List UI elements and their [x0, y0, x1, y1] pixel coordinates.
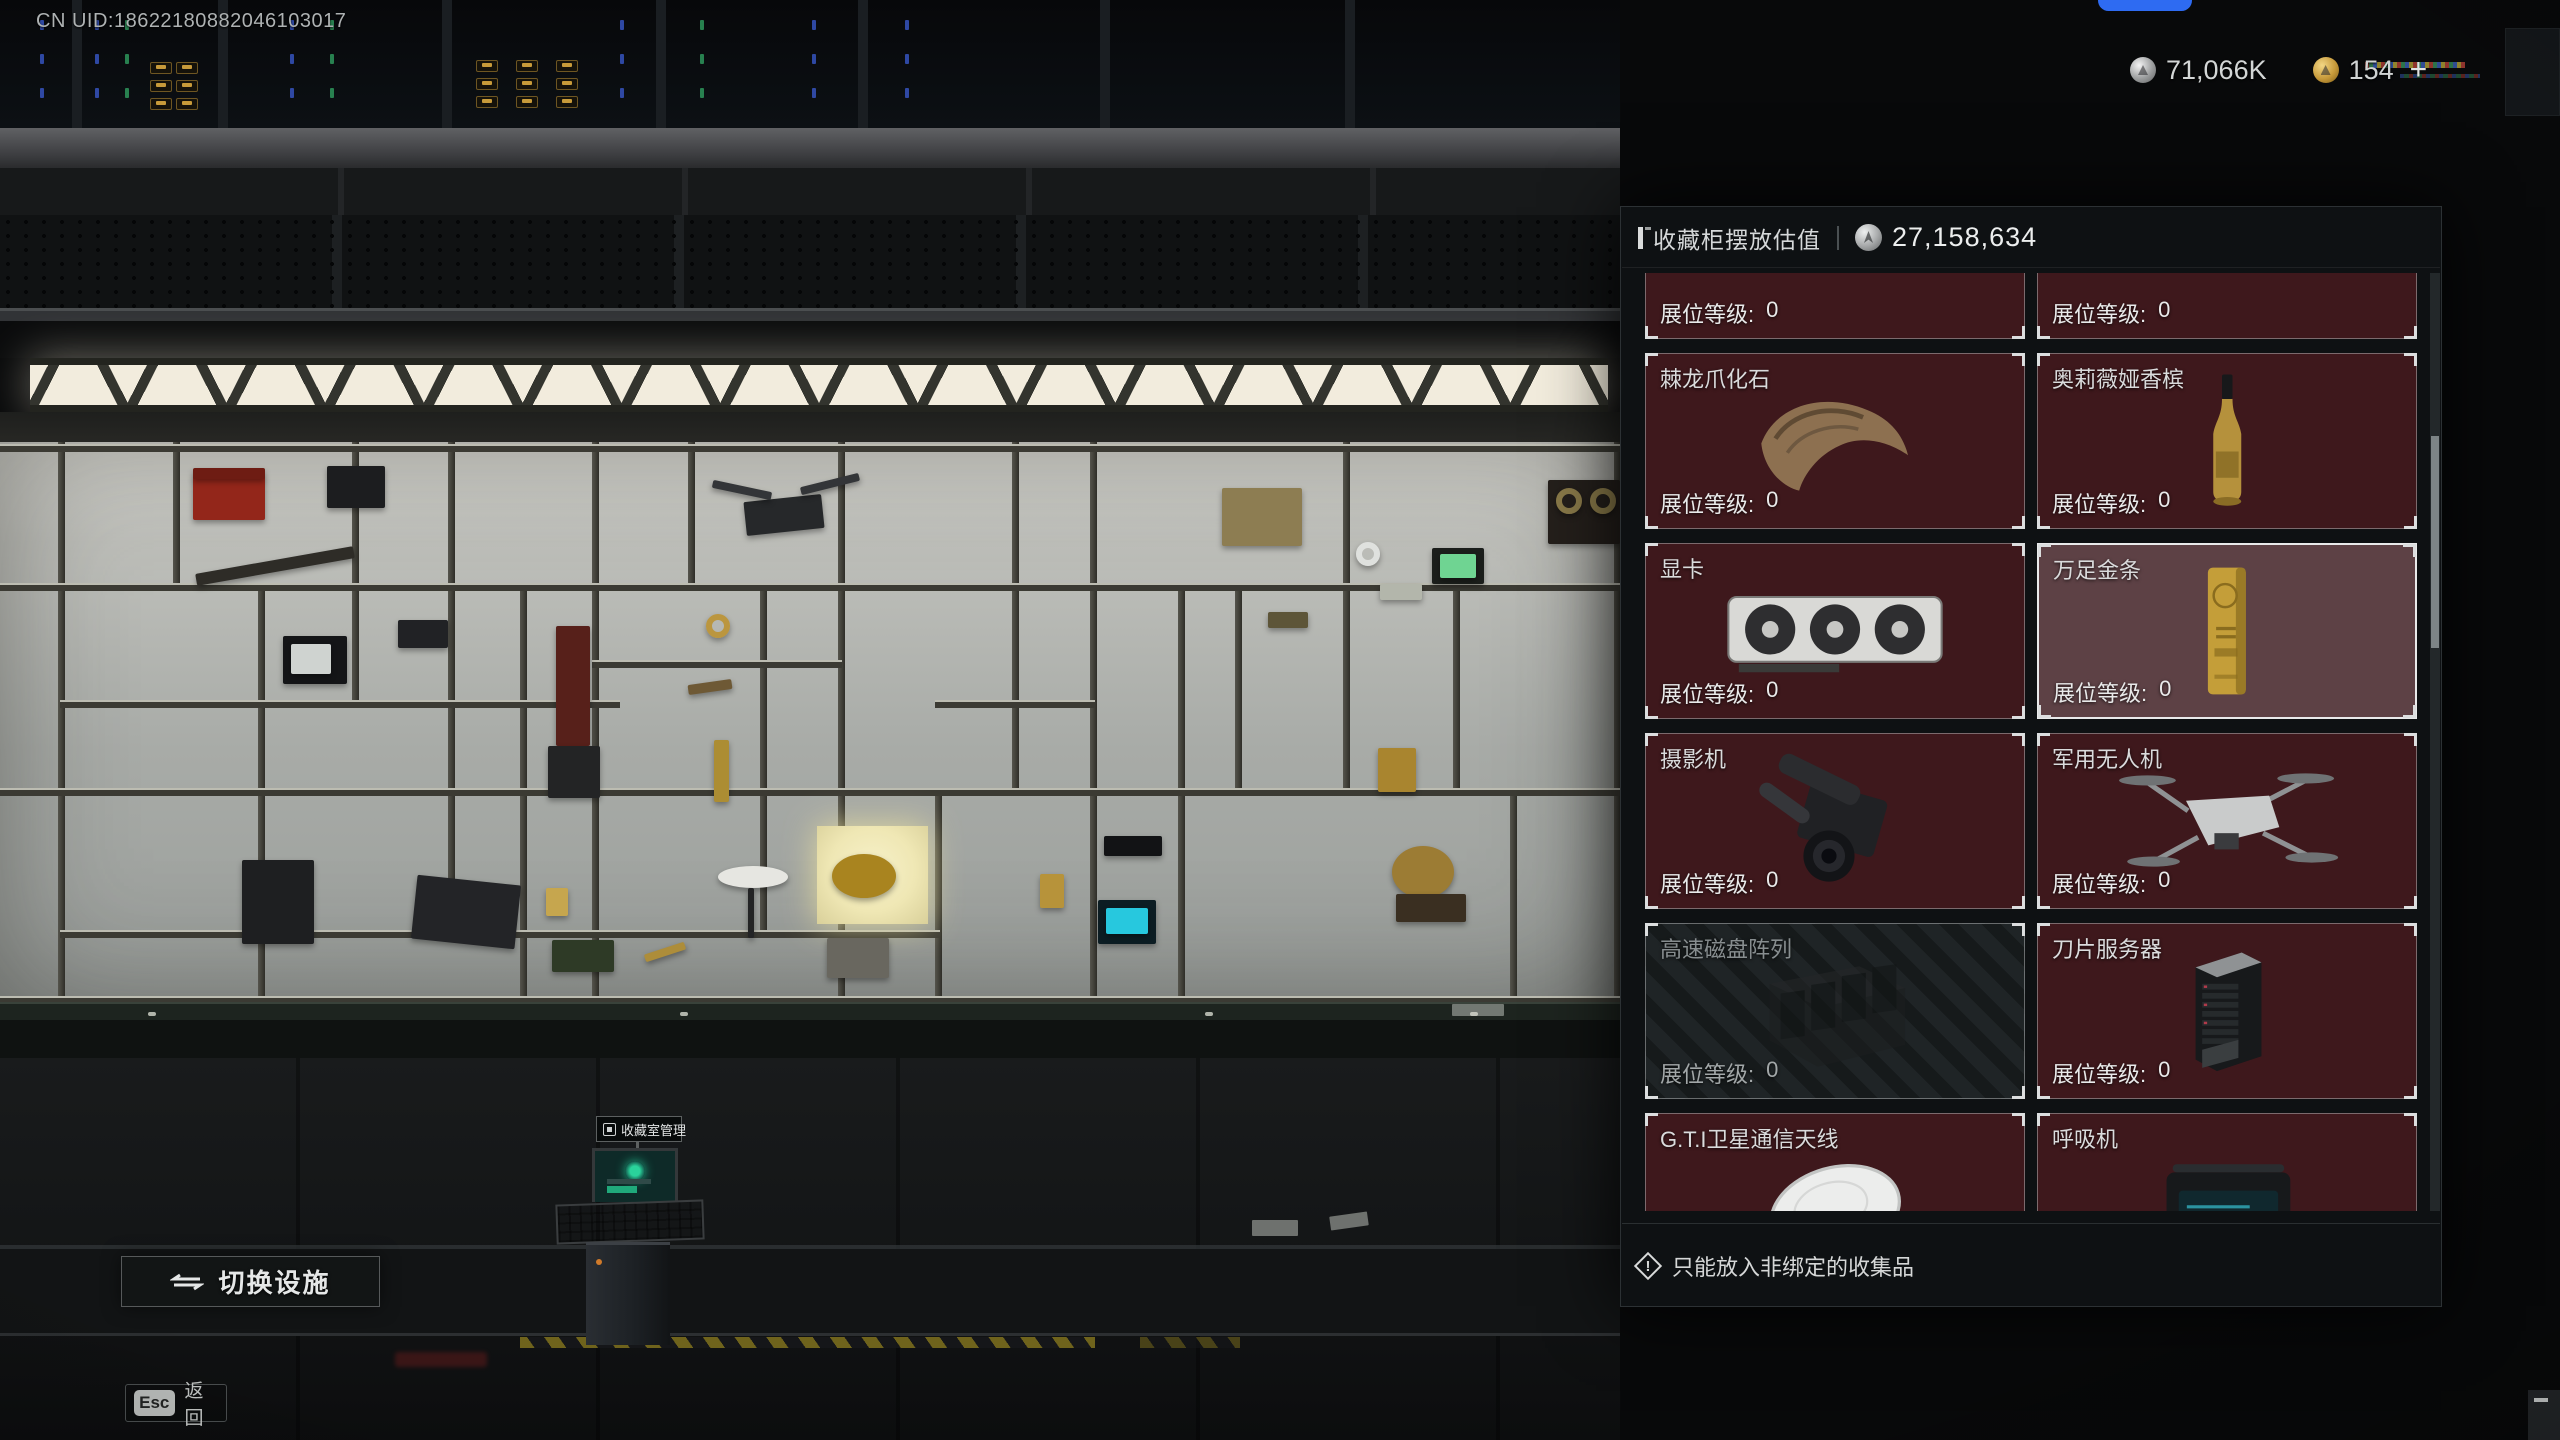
- item-name: 显卡: [1660, 552, 1704, 584]
- item-name: 摄影机: [1660, 742, 1726, 774]
- shelf-upright: [448, 442, 455, 930]
- amber-rack-module: [516, 96, 538, 108]
- counter-top: [0, 1002, 1620, 1020]
- briefcase: [411, 875, 521, 950]
- terminal-laptop-screen: [592, 1148, 678, 1202]
- shelf-upright: [1090, 442, 1097, 1000]
- collection-grid: 展位等级:0展位等级:0棘龙爪化石展位等级:0奥莉薇娅香槟展位等级:0显卡展位等…: [1645, 273, 2417, 1211]
- shelf-upright: [1012, 442, 1019, 788]
- booth-level: 展位等级:0: [1660, 297, 1778, 329]
- booth-level-label: 展位等级:: [1660, 1057, 1754, 1089]
- gold-ring: [706, 614, 730, 638]
- ceiling-sill: [0, 308, 1620, 321]
- card-corner-tick: [2038, 544, 2051, 557]
- collection-card-claw[interactable]: 棘龙爪化石展位等级:0: [1645, 353, 2025, 529]
- amber-rack-module: [176, 98, 198, 110]
- card-corner-tick: [2012, 733, 2025, 746]
- card-corner-tick: [1645, 543, 1658, 556]
- rack-led: [330, 88, 334, 98]
- rack-led: [905, 20, 909, 30]
- card-corner-tick: [2404, 733, 2417, 746]
- window-mullion: [442, 0, 452, 128]
- terminal-keyboard: [555, 1199, 704, 1244]
- shelf-board: [935, 700, 1095, 708]
- booth-level-value: 0: [1766, 677, 1778, 709]
- card-corner-tick: [2404, 326, 2417, 339]
- booth-level: 展位等级:0: [1660, 867, 1778, 899]
- rack-led: [812, 54, 816, 64]
- collection-valuation-panel: 收藏柜摆放估值 27,158,634 展位等级:0展位等级:0棘龙爪化石展位等级…: [1621, 207, 2441, 1306]
- cabinet-icon: [603, 1123, 616, 1136]
- booth-level-label: 展位等级:: [2052, 487, 2146, 519]
- vintage-radio: [242, 860, 314, 944]
- header-separator: [1837, 226, 1839, 250]
- item-name: 棘龙爪化石: [1660, 362, 1770, 394]
- card-corner-tick: [1645, 1086, 1658, 1099]
- shelf-board: [0, 788, 1620, 796]
- skylight-lower-band: [0, 412, 1620, 442]
- shelf-upright: [1343, 442, 1350, 788]
- ceiling-panel-row: [0, 168, 1620, 215]
- collection-card-white-part[interactable]: 展位等级:0: [2037, 273, 2417, 339]
- counter-light: [148, 1012, 156, 1016]
- ammo-box: [552, 940, 614, 972]
- plate-stand: [748, 888, 754, 938]
- shelf-upright: [688, 442, 695, 583]
- shelf-upright: [935, 788, 942, 1000]
- card-corner-tick: [2012, 353, 2025, 366]
- booth-level-value: 0: [2158, 1057, 2170, 1089]
- card-corner-tick: [1645, 896, 1658, 909]
- rack-led: [620, 54, 624, 64]
- collection-grid-viewport: 展位等级:0展位等级:0棘龙爪化石展位等级:0奥莉薇娅香槟展位等级:0显卡展位等…: [1622, 273, 2442, 1211]
- card-corner-tick: [2403, 705, 2416, 718]
- rack-led: [125, 54, 129, 64]
- amber-rack-module: [150, 62, 172, 74]
- booth-level-label: 展位等级:: [1660, 867, 1754, 899]
- amber-rack-module: [150, 80, 172, 92]
- rack-led: [905, 54, 909, 64]
- total-valuation: 27,158,634: [1892, 222, 2037, 253]
- booth-level: 展位等级:0: [2053, 676, 2171, 708]
- card-corner-tick: [1645, 706, 1658, 719]
- rack-led: [700, 88, 704, 98]
- booth-level-value: 0: [2159, 676, 2171, 708]
- amber-rack-module: [556, 78, 578, 90]
- amber-rack-module: [150, 98, 172, 110]
- shelf-upright: [173, 442, 180, 583]
- booth-level-label: 展位等级:: [2053, 676, 2147, 708]
- card-corner-tick: [2037, 1086, 2050, 1099]
- card-corner-tick: [1645, 733, 1658, 746]
- gold-idol: [1040, 874, 1064, 908]
- booth-level-value: 0: [1766, 297, 1778, 329]
- vacuum-body: [556, 626, 590, 746]
- paper-sheet: [1452, 1004, 1504, 1016]
- counter-light: [1205, 1012, 1213, 1016]
- counter-light: [1470, 1012, 1478, 1016]
- item-name: G.T.I卫星通信天线: [1660, 1122, 1838, 1154]
- silver-amount: 71,066K: [2166, 55, 2267, 86]
- hazard-stripe-small: [1140, 1337, 1240, 1348]
- step-edge: [0, 1333, 1620, 1336]
- rack-led: [700, 54, 704, 64]
- panel-title: 收藏柜摆放估值: [1653, 221, 1821, 255]
- scrollbar-thumb[interactable]: [2431, 436, 2439, 648]
- swap-arrows-icon: [170, 1271, 204, 1293]
- gramophone-horn: [1392, 846, 1454, 898]
- right-dark-region: [2441, 0, 2560, 1440]
- back-label: 返回: [185, 1376, 218, 1430]
- switch-facility-label: 切换设施: [218, 1263, 330, 1300]
- card-corner-tick: [2404, 353, 2417, 366]
- military-radio: [1222, 488, 1302, 546]
- booth-level-label: 展位等级:: [1660, 487, 1754, 519]
- amber-rack-module: [176, 62, 198, 74]
- rack-led: [905, 88, 909, 98]
- card-corner-tick: [2012, 326, 2025, 339]
- item-name: 奥莉薇娅香槟: [2052, 362, 2184, 394]
- shelf-board: [60, 700, 620, 708]
- card-corner-tick: [2404, 923, 2417, 936]
- laptop-progress-bar: [607, 1186, 637, 1193]
- money-stack: [1380, 584, 1422, 600]
- shelf-upright: [1453, 583, 1460, 788]
- amber-rack-module: [516, 78, 538, 90]
- item-name: 军用无人机: [2052, 742, 2162, 774]
- paper-sheet: [1252, 1220, 1298, 1236]
- rack-led: [125, 88, 129, 98]
- amber-rack-module: [556, 96, 578, 108]
- rack-led: [40, 88, 44, 98]
- rack-led: [620, 20, 624, 30]
- card-corner-tick: [2038, 705, 2051, 718]
- shelf-board: [0, 583, 1620, 591]
- booth-level: 展位等级:0: [1660, 487, 1778, 519]
- rack-led: [290, 88, 294, 98]
- booth-level: 展位等级:0: [1660, 677, 1778, 709]
- shelf-upright: [1510, 788, 1517, 1000]
- ceiling-vent-panels: [0, 215, 1620, 308]
- footer-note: 只能放入非绑定的收集品: [1672, 1250, 1914, 1282]
- amber-rack-module: [476, 78, 498, 90]
- shelf-upright: [58, 442, 65, 1000]
- gramophone-base: [1396, 894, 1466, 922]
- booth-level-label: 展位等级:: [2052, 867, 2146, 899]
- card-corner-tick: [2037, 733, 2050, 746]
- collection-card-champagne[interactable]: 奥莉薇娅香槟展位等级:0: [2037, 353, 2417, 529]
- ceiling-understructure: [0, 321, 1620, 358]
- player-uid: CN UID:18622180882046103017: [36, 10, 346, 33]
- power-led: [596, 1259, 602, 1265]
- right-machine: [2528, 1390, 2560, 1440]
- notification-pill: [2098, 0, 2192, 11]
- booth-level-value: 0: [1766, 487, 1778, 519]
- reel-left: [1556, 488, 1582, 514]
- tank-model: [1268, 612, 1308, 628]
- amber-rack-module: [556, 60, 578, 72]
- gold-artifact-bowl: [832, 854, 896, 898]
- dark-box: [327, 466, 385, 508]
- card-corner-tick: [2012, 1113, 2025, 1126]
- booth-level-label: 展位等级:: [1660, 677, 1754, 709]
- window-mullion: [1345, 0, 1355, 128]
- card-corner-tick: [2404, 1086, 2417, 1099]
- card-corner-tick: [1645, 516, 1658, 529]
- card-corner-tick: [2012, 706, 2025, 719]
- vacuum-base: [548, 746, 600, 798]
- card-corner-tick: [2037, 353, 2050, 366]
- item-name: 呼吸机: [2052, 1122, 2118, 1154]
- rack-led: [812, 88, 816, 98]
- booth-level-value: 0: [2158, 487, 2170, 519]
- shelf-upright: [1235, 583, 1242, 788]
- shelf-board: [592, 660, 842, 668]
- card-corner-tick: [2404, 1113, 2417, 1126]
- panel-footer: ! 只能放入非绑定的收集品: [1622, 1223, 2440, 1307]
- amber-rack-module: [476, 96, 498, 108]
- booth-level-label: 展位等级:: [2052, 1057, 2146, 1089]
- collection-card-camera[interactable]: 摄影机展位等级:0: [1645, 733, 2025, 909]
- gold-card: [546, 888, 568, 916]
- card-corner-tick: [2012, 516, 2025, 529]
- card-corner-tick: [2012, 543, 2025, 556]
- rack-led: [812, 20, 816, 30]
- card-corner-tick: [2012, 923, 2025, 936]
- red-graffiti: [395, 1352, 487, 1367]
- rack-led: [330, 54, 334, 64]
- item-name: 高速磁盘阵列: [1660, 932, 1792, 964]
- card-corner-tick: [1645, 1113, 1658, 1126]
- booth-level: 展位等级:0: [1660, 1057, 1778, 1089]
- skylight-truss-light: [30, 358, 1608, 412]
- card-corner-tick: [1645, 353, 1658, 366]
- shelf-upright: [592, 442, 599, 1000]
- gold-coin-icon: [2313, 57, 2339, 83]
- scrollbar[interactable]: [2430, 273, 2440, 1211]
- booth-level-label: 展位等级:: [1660, 297, 1754, 329]
- collection-card-circuit-board[interactable]: 展位等级:0: [1645, 273, 2025, 339]
- gold-amount: 154: [2349, 55, 2394, 86]
- card-corner-tick: [2037, 1113, 2050, 1126]
- reel-right: [1590, 488, 1616, 514]
- window-mullion: [1100, 0, 1110, 128]
- shelf-board: [0, 444, 1620, 452]
- amber-rack-module: [176, 80, 198, 92]
- stone-tablet: [827, 938, 889, 978]
- collection-card-gpu[interactable]: 显卡展位等级:0: [1645, 543, 2025, 719]
- warning-diamond-icon: !: [1634, 1251, 1662, 1279]
- card-corner-tick: [2012, 1086, 2025, 1099]
- card-corner-tick: [2404, 516, 2417, 529]
- terminal-label-text: 收藏室管理: [621, 1120, 686, 1139]
- red-toolbox: [193, 476, 265, 520]
- booth-level: 展位等级:0: [2052, 297, 2170, 329]
- silver-coin-icon: [1855, 224, 1882, 251]
- white-plate: [718, 866, 788, 888]
- card-corner-tick: [1645, 326, 1658, 339]
- window-mullion: [656, 0, 666, 128]
- silver-coin-icon: [2130, 57, 2156, 83]
- rack-led: [700, 20, 704, 30]
- goggles: [1104, 836, 1162, 856]
- game-screen: 收藏室管理 CN UID:18622180882046103017 71,066…: [0, 0, 2560, 1440]
- collection-card-ventilator[interactable]: 呼吸机展位等级:0: [2037, 1113, 2417, 1211]
- toolbox-lid: [193, 468, 265, 479]
- esc-back-hint[interactable]: Esc 返回: [125, 1384, 227, 1422]
- card-corner-tick: [2037, 516, 2050, 529]
- card-corner-tick: [2037, 923, 2050, 936]
- booth-level-value: 0: [2158, 867, 2170, 899]
- terminal-world-label[interactable]: 收藏室管理: [596, 1116, 682, 1142]
- booth-level: 展位等级:0: [2052, 867, 2170, 899]
- counter-light: [680, 1012, 688, 1016]
- item-name: 万足金条: [2053, 553, 2141, 585]
- collection-card-disk-array[interactable]: 高速磁盘阵列展位等级:0: [1645, 923, 2025, 1099]
- field-monitor-screen: [1440, 554, 1476, 578]
- booth-level: 展位等级:0: [2052, 487, 2170, 519]
- rack-led: [95, 54, 99, 64]
- holo-screen: [1106, 908, 1148, 934]
- wine-bottle: [714, 740, 729, 802]
- card-corner-tick: [2403, 544, 2416, 557]
- header-marker: [1638, 227, 1643, 249]
- card-corner-tick: [2037, 326, 2050, 339]
- card-corner-tick: [1645, 923, 1658, 936]
- switch-facility-button[interactable]: 切换设施: [121, 1256, 380, 1307]
- collection-card-gold-bar[interactable]: 万足金条展位等级:0: [2037, 543, 2417, 719]
- booth-level-label: 展位等级:: [2052, 297, 2146, 329]
- right-server-rack: [2505, 28, 2560, 116]
- card-corner-tick: [2404, 896, 2417, 909]
- rack-led: [290, 54, 294, 64]
- laptop-progress-track: [607, 1179, 651, 1184]
- rack-led: [620, 88, 624, 98]
- ceiling-beam: [0, 128, 1620, 168]
- collection-card-drone[interactable]: 军用无人机展位等级:0: [2037, 733, 2417, 909]
- counter-front: [0, 1020, 1620, 1058]
- card-corner-tick: [2012, 896, 2025, 909]
- cd-disc: [1356, 542, 1380, 566]
- collection-card-satellite-dish[interactable]: G.T.I卫星通信天线展位等级:0: [1645, 1113, 2025, 1211]
- esc-key-badge: Esc: [134, 1390, 175, 1416]
- item-name: 刀片服务器: [2052, 932, 2162, 964]
- booth-level-value: 0: [1766, 1057, 1778, 1089]
- booth-level-value: 0: [2158, 297, 2170, 329]
- add-currency-button[interactable]: +: [2410, 53, 2428, 87]
- gold-deer-statue: [1378, 748, 1416, 792]
- window-mullion: [858, 0, 868, 128]
- collection-card-blade-server[interactable]: 刀片服务器展位等级:0: [2037, 923, 2417, 1099]
- currency-bar: 71,066K 154 +: [2130, 52, 2440, 88]
- rack-led: [40, 54, 44, 64]
- amber-rack-module: [476, 60, 498, 72]
- booth-level: 展位等级:0: [2052, 1057, 2170, 1089]
- crt-screen: [291, 644, 331, 674]
- booth-level-value: 0: [1766, 867, 1778, 899]
- terminal-stand: [586, 1242, 670, 1345]
- card-corner-tick: [2037, 896, 2050, 909]
- amber-rack-module: [516, 60, 538, 72]
- rack-led: [95, 88, 99, 98]
- spy-camera: [398, 620, 448, 648]
- panel-header: 收藏柜摆放估值 27,158,634: [1622, 208, 2440, 268]
